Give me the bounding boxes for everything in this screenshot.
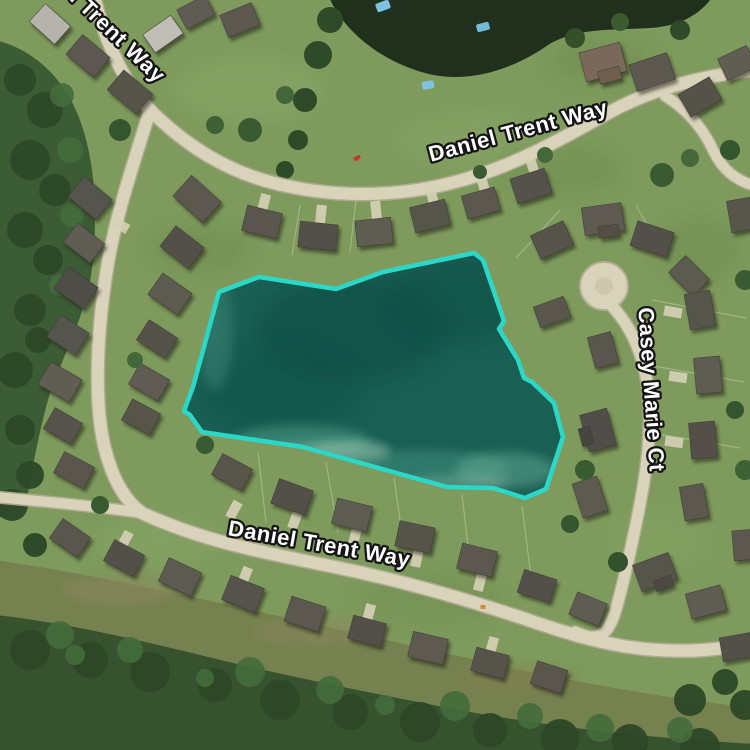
tree xyxy=(681,149,699,167)
tree xyxy=(473,165,487,179)
map-viewport[interactable]: Daniel Trent Way Daniel Trent Way Casey … xyxy=(0,0,750,750)
house xyxy=(732,529,750,561)
tree xyxy=(206,116,224,134)
tree xyxy=(670,20,690,40)
satellite-map-canvas: Daniel Trent Way Daniel Trent Way Casey … xyxy=(0,0,750,750)
tree xyxy=(611,13,629,31)
driveway xyxy=(370,201,382,220)
tree xyxy=(276,86,294,104)
tree xyxy=(650,163,674,187)
tree xyxy=(23,533,47,557)
tree xyxy=(561,515,579,533)
tree xyxy=(726,401,744,419)
tree xyxy=(565,28,585,48)
tree xyxy=(238,118,262,142)
tree xyxy=(91,496,109,514)
tree xyxy=(720,140,740,160)
object-marker xyxy=(481,605,486,609)
tree xyxy=(575,460,595,480)
tree xyxy=(608,552,628,572)
driveway xyxy=(315,205,327,224)
tree xyxy=(537,147,553,163)
house xyxy=(688,421,717,459)
house xyxy=(298,221,339,251)
house xyxy=(355,217,394,247)
house-wing xyxy=(598,224,619,239)
tree xyxy=(109,119,131,141)
tree xyxy=(127,352,143,368)
tree xyxy=(196,436,214,454)
house xyxy=(693,356,722,394)
